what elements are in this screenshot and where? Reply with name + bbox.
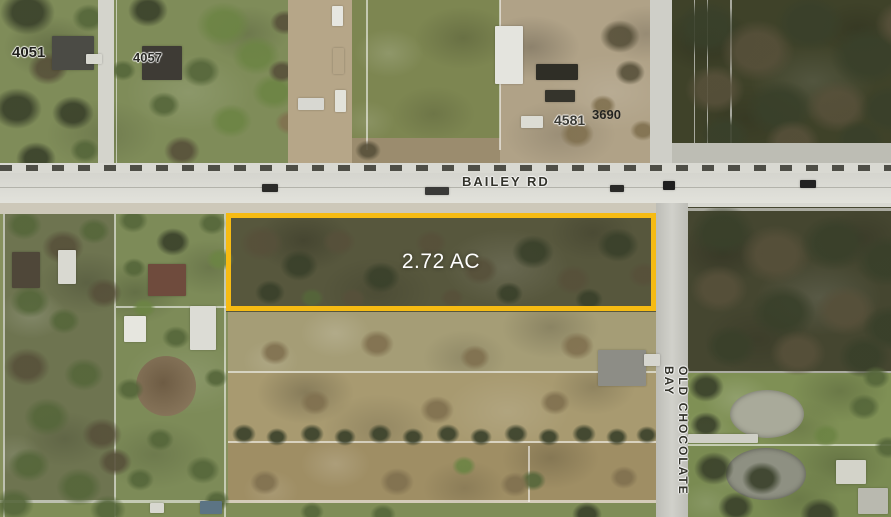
driveway [86,54,102,64]
address-label-4057: 4057 [133,50,162,65]
building [200,501,222,514]
car [610,185,624,192]
parcel-area-label: 2.72 AC [226,213,656,311]
address-label-3690: 3690 [592,107,621,122]
house [598,350,646,386]
driveway [644,354,660,366]
trailer [332,6,343,26]
car [663,181,675,190]
trailer [333,48,344,74]
trailer [536,64,578,80]
car [800,180,816,188]
house [52,36,94,70]
driveway [688,434,758,443]
house [858,488,888,514]
trailer [545,90,575,102]
vehicle [298,98,324,110]
address-label-4581: 4581 [554,112,585,128]
address-label-4051: 4051 [12,44,45,61]
car [262,184,278,192]
trailer [58,250,76,284]
shed [150,503,164,513]
shed [124,316,146,342]
old-chocolate-bay-label: OLD CHOCOLATE BAY [662,366,690,517]
house [836,460,866,484]
shed [190,306,216,350]
satellite-map: 2.72 AC BAILEY RD OLD CHOCOLATE BAY 4051… [0,0,891,517]
house [148,264,186,296]
car [425,187,449,195]
concrete-pad [495,26,523,84]
trailer [335,90,346,112]
bailey-rd-label: BAILEY RD [462,174,550,189]
house [12,252,40,288]
vehicle [521,116,543,128]
